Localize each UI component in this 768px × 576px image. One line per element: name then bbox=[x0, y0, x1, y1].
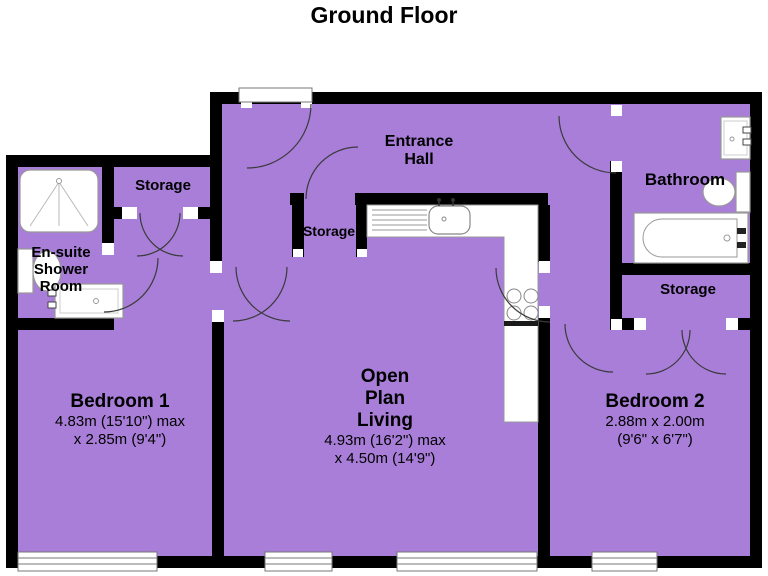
floor-plan-page: Ground Floor bbox=[0, 0, 768, 576]
door-jamb bbox=[611, 105, 622, 116]
bathtub-icon bbox=[634, 213, 748, 263]
door-jamb bbox=[726, 318, 738, 330]
wall-living-bed2-divider bbox=[538, 318, 550, 556]
door-jamb bbox=[611, 319, 622, 330]
bathroom-basin-icon bbox=[721, 117, 751, 159]
bathroom-label: Bathroom bbox=[620, 170, 750, 190]
entrance-hall-line2: Hall bbox=[349, 151, 489, 169]
ensuite-label: En-suite Shower Room bbox=[11, 244, 111, 295]
living-label: Open Plan Living 4.93m (16'2") max x 4.5… bbox=[285, 366, 485, 468]
door-jamb bbox=[357, 249, 367, 257]
door-jamb bbox=[539, 306, 550, 318]
door-jamb bbox=[293, 249, 303, 257]
wall-storage1-bottom-a bbox=[102, 207, 123, 219]
shower-tray-icon bbox=[20, 170, 98, 232]
bedroom2-dim2: (9'6" x 6'7") bbox=[555, 431, 755, 449]
wall-top-left bbox=[6, 155, 222, 167]
window-bedroom1 bbox=[18, 552, 157, 571]
door-jamb bbox=[539, 261, 550, 273]
bedroom2-name: Bedroom 2 bbox=[555, 391, 755, 413]
storage-right-label: Storage bbox=[628, 281, 748, 298]
wall-ensuite-bottom bbox=[18, 318, 114, 330]
door-jamb bbox=[210, 261, 222, 273]
bedroom1-dim2: x 2.85m (9'4") bbox=[20, 431, 220, 449]
storage-top-left-label: Storage bbox=[103, 177, 223, 194]
living-dim2: x 4.50m (14'9") bbox=[285, 450, 485, 468]
wall-left bbox=[6, 155, 18, 568]
ensuite-line1: En-suite bbox=[11, 244, 111, 261]
wall-bathroom-storage-divider bbox=[622, 263, 750, 275]
entrance-hall-line1: Entrance bbox=[349, 133, 489, 151]
living-line3: Living bbox=[285, 410, 485, 432]
wall-storage2-bottom-b bbox=[738, 318, 750, 330]
living-dim1: 4.93m (16'2") max bbox=[285, 432, 485, 450]
bedroom1-name: Bedroom 1 bbox=[20, 391, 220, 413]
wall-right bbox=[750, 92, 762, 568]
page-title: Ground Floor bbox=[0, 2, 768, 29]
storage-middle-label: Storage bbox=[299, 223, 359, 239]
door-jamb bbox=[183, 207, 198, 219]
door-jamb bbox=[634, 318, 646, 330]
living-line1: Open bbox=[285, 366, 485, 388]
ensuite-line3: Room bbox=[11, 278, 111, 295]
window-living-large bbox=[397, 552, 537, 571]
bedroom1-label: Bedroom 1 4.83m (15'10") max x 2.85m (9'… bbox=[20, 391, 220, 449]
bedroom2-dim1: 2.88m x 2.00m bbox=[555, 413, 755, 431]
ensuite-line2: Shower bbox=[11, 261, 111, 278]
wall-kitchen-right bbox=[538, 205, 550, 262]
wall-storage2-bottom-a bbox=[622, 318, 634, 330]
living-line2: Plan bbox=[285, 388, 485, 410]
entrance-door-frame bbox=[239, 88, 312, 102]
window-living-small bbox=[265, 552, 332, 571]
entrance-hall-label: Entrance Hall bbox=[349, 133, 489, 169]
window-bedroom2 bbox=[592, 552, 657, 571]
bedroom1-dim1: 4.83m (15'10") max bbox=[20, 413, 220, 431]
wall-connector bbox=[210, 92, 222, 167]
door-jamb bbox=[212, 310, 224, 322]
bedroom2-label: Bedroom 2 2.88m x 2.00m (9'6" x 6'7") bbox=[555, 391, 755, 449]
door-jamb bbox=[122, 207, 137, 219]
